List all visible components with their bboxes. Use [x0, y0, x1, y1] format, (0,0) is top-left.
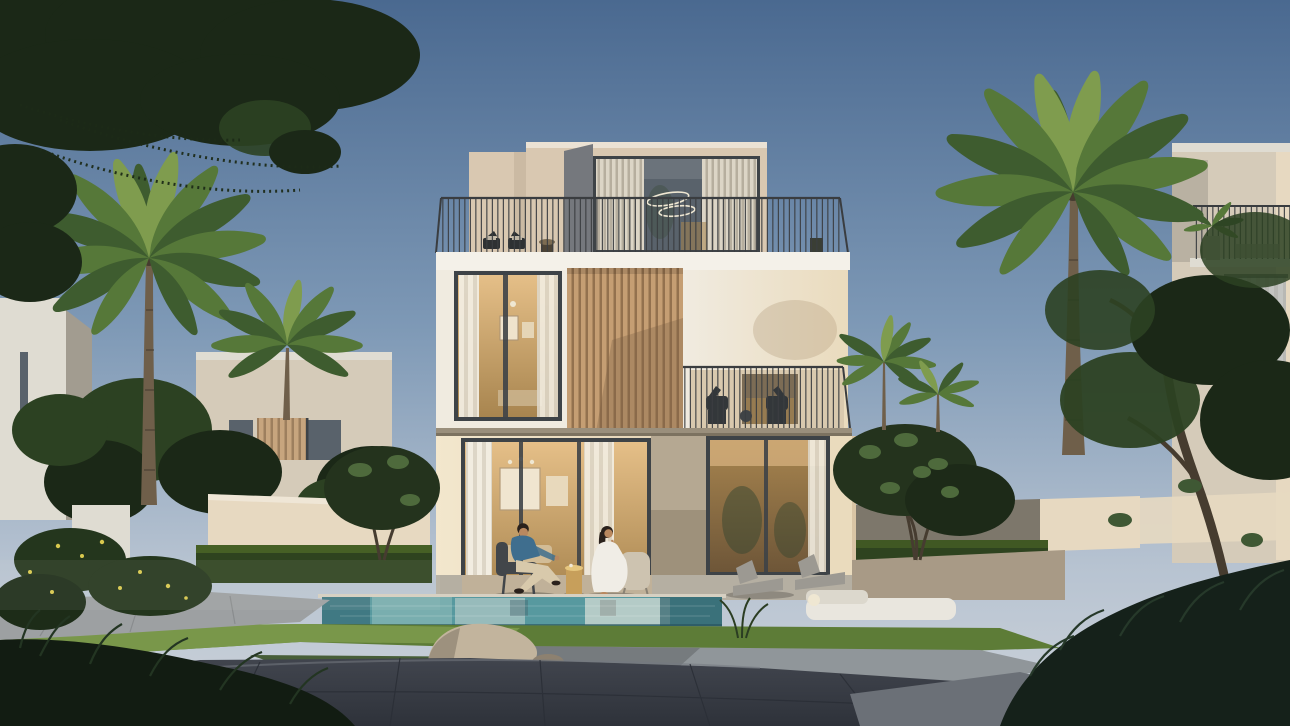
sheer-curtain — [537, 275, 558, 417]
pool-person-reflection — [510, 600, 528, 616]
villa-render-image: Photorealistic dusk rendering of a moder… — [0, 0, 1290, 726]
timber-slat-cladding — [567, 268, 683, 432]
gold-side-table — [563, 564, 585, 598]
interior-art — [500, 316, 518, 340]
balcony — [683, 367, 850, 428]
scene-canvas — [0, 0, 1290, 726]
glass-tree-reflection — [722, 486, 762, 554]
neighbor-window — [308, 420, 341, 460]
middle-floor — [436, 268, 852, 436]
palm-shadow-on-wall — [753, 300, 837, 360]
sheer-curtain — [459, 275, 479, 417]
rooftop-terrace-railing — [436, 198, 848, 253]
ground-glass-doors-right — [706, 436, 830, 576]
interior-art — [522, 322, 534, 338]
pool-person-reflection — [600, 600, 616, 616]
sheer-curtain — [466, 442, 492, 596]
sheer-curtain — [808, 440, 826, 572]
dusk-haze — [0, 560, 440, 610]
terrace-parapet — [436, 252, 850, 270]
pool-tree-reflection — [660, 597, 722, 626]
interior-pendant — [510, 301, 516, 307]
pool-facade-reflection — [585, 598, 670, 625]
middle-window — [454, 271, 562, 421]
sphere-lamp — [808, 594, 820, 606]
rooftop-terrace — [436, 198, 850, 270]
interior-art — [546, 476, 568, 506]
balcony-railing — [683, 367, 850, 428]
